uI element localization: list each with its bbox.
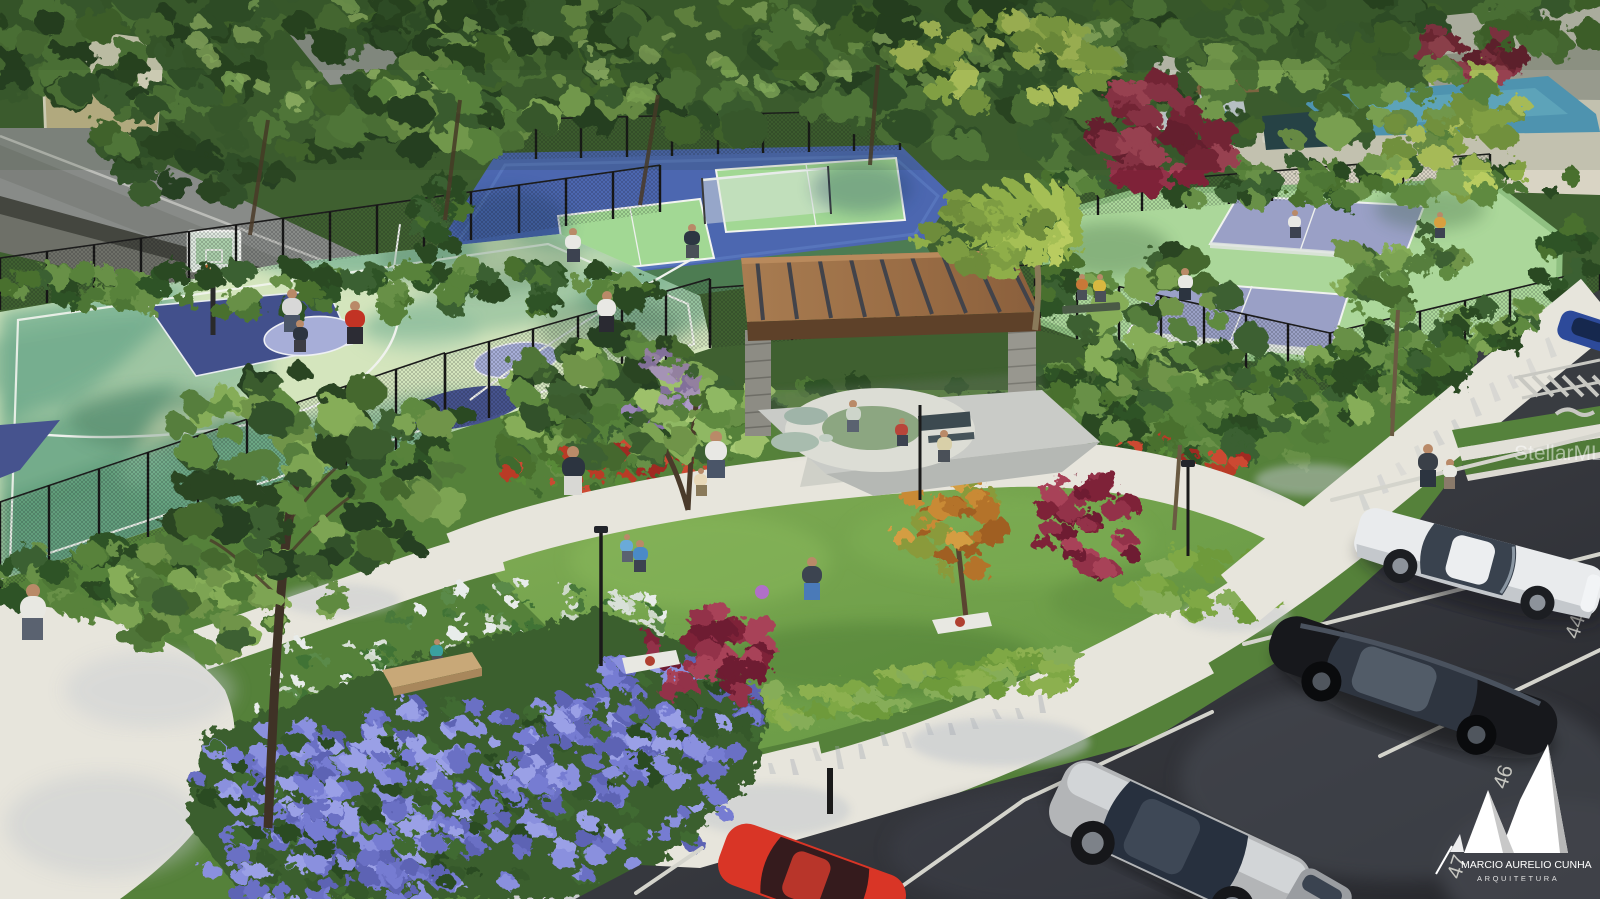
svg-text:StellarMLS: StellarMLS [1514, 442, 1600, 465]
svg-text:MARCIO AURELIO CUNHA: MARCIO AURELIO CUNHA [1461, 859, 1592, 871]
svg-text:ARQUITETURA: ARQUITETURA [1477, 874, 1559, 883]
